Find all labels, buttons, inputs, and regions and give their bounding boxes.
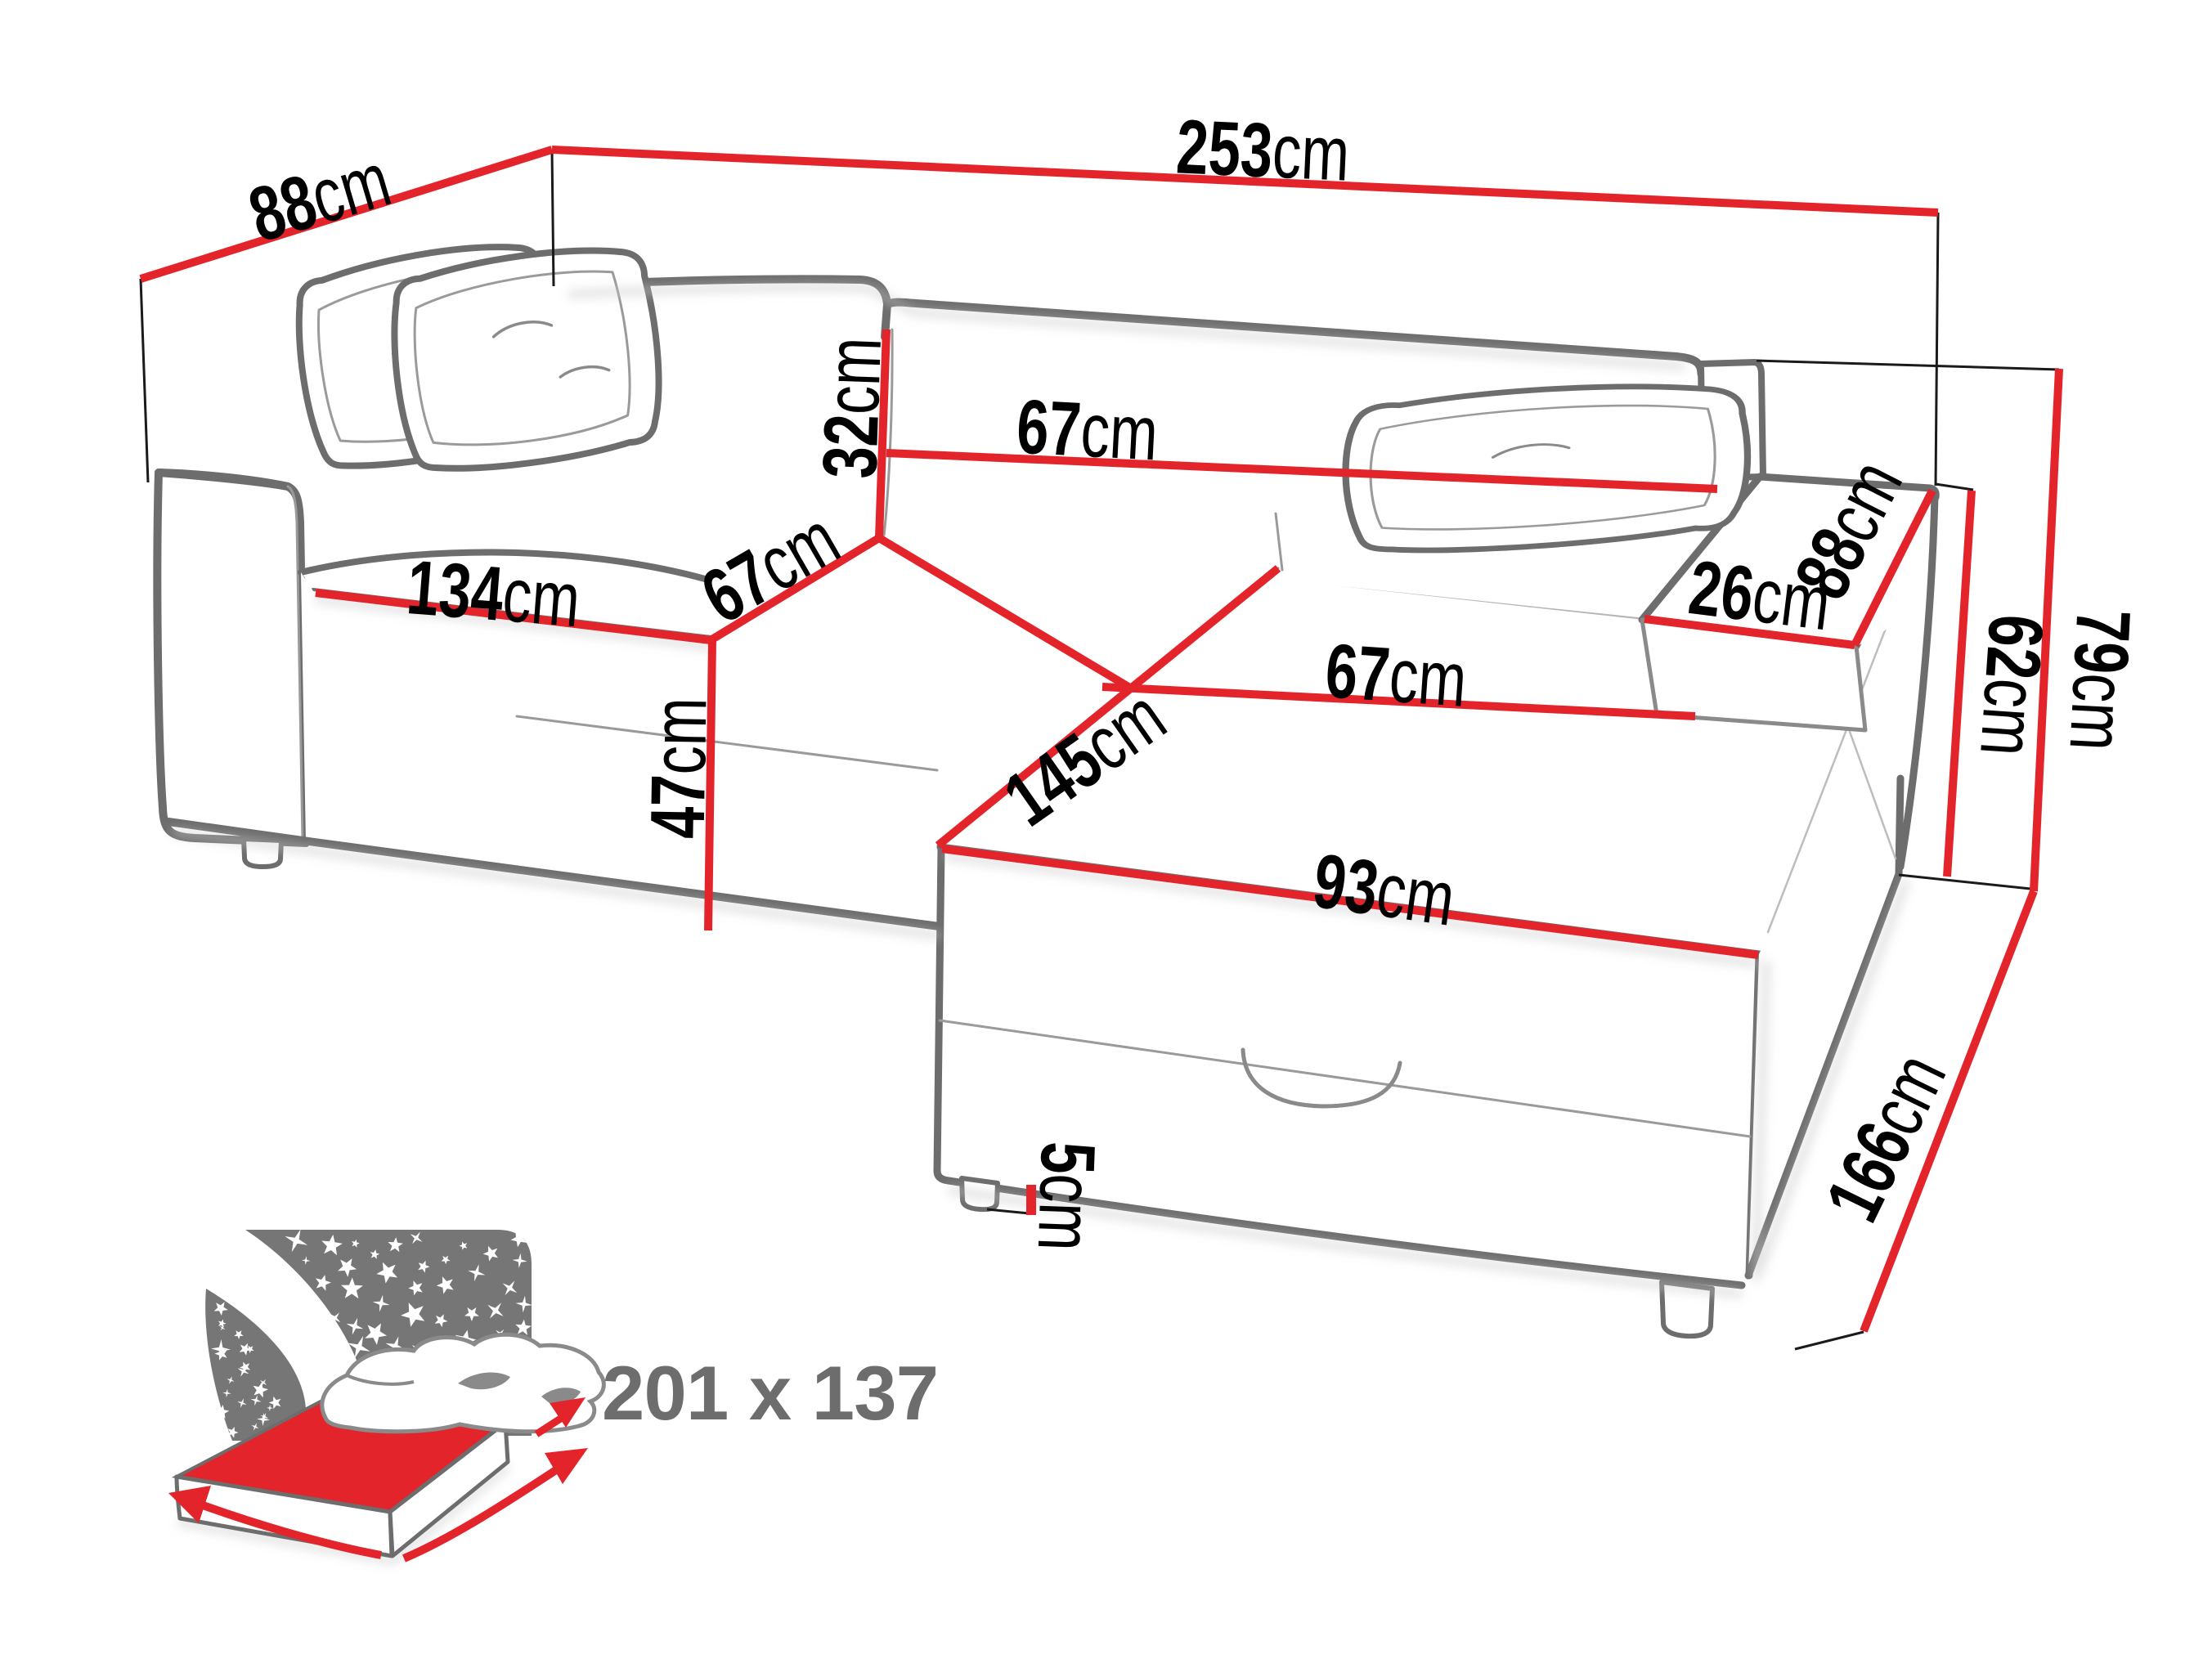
svg-text:253cm: 253cm: [1174, 103, 1351, 197]
svg-text:201 x 137: 201 x 137: [602, 1350, 939, 1436]
svg-text:32cm: 32cm: [806, 336, 897, 480]
svg-text:67cm: 67cm: [1015, 383, 1160, 477]
svg-text:134cm: 134cm: [404, 544, 583, 643]
svg-text:62cm: 62cm: [1964, 612, 2060, 759]
svg-text:67cm: 67cm: [1323, 627, 1469, 723]
svg-text:47cm: 47cm: [635, 697, 723, 839]
svg-text:79cm: 79cm: [2053, 608, 2147, 753]
svg-text:5cm: 5cm: [1021, 1141, 1111, 1253]
